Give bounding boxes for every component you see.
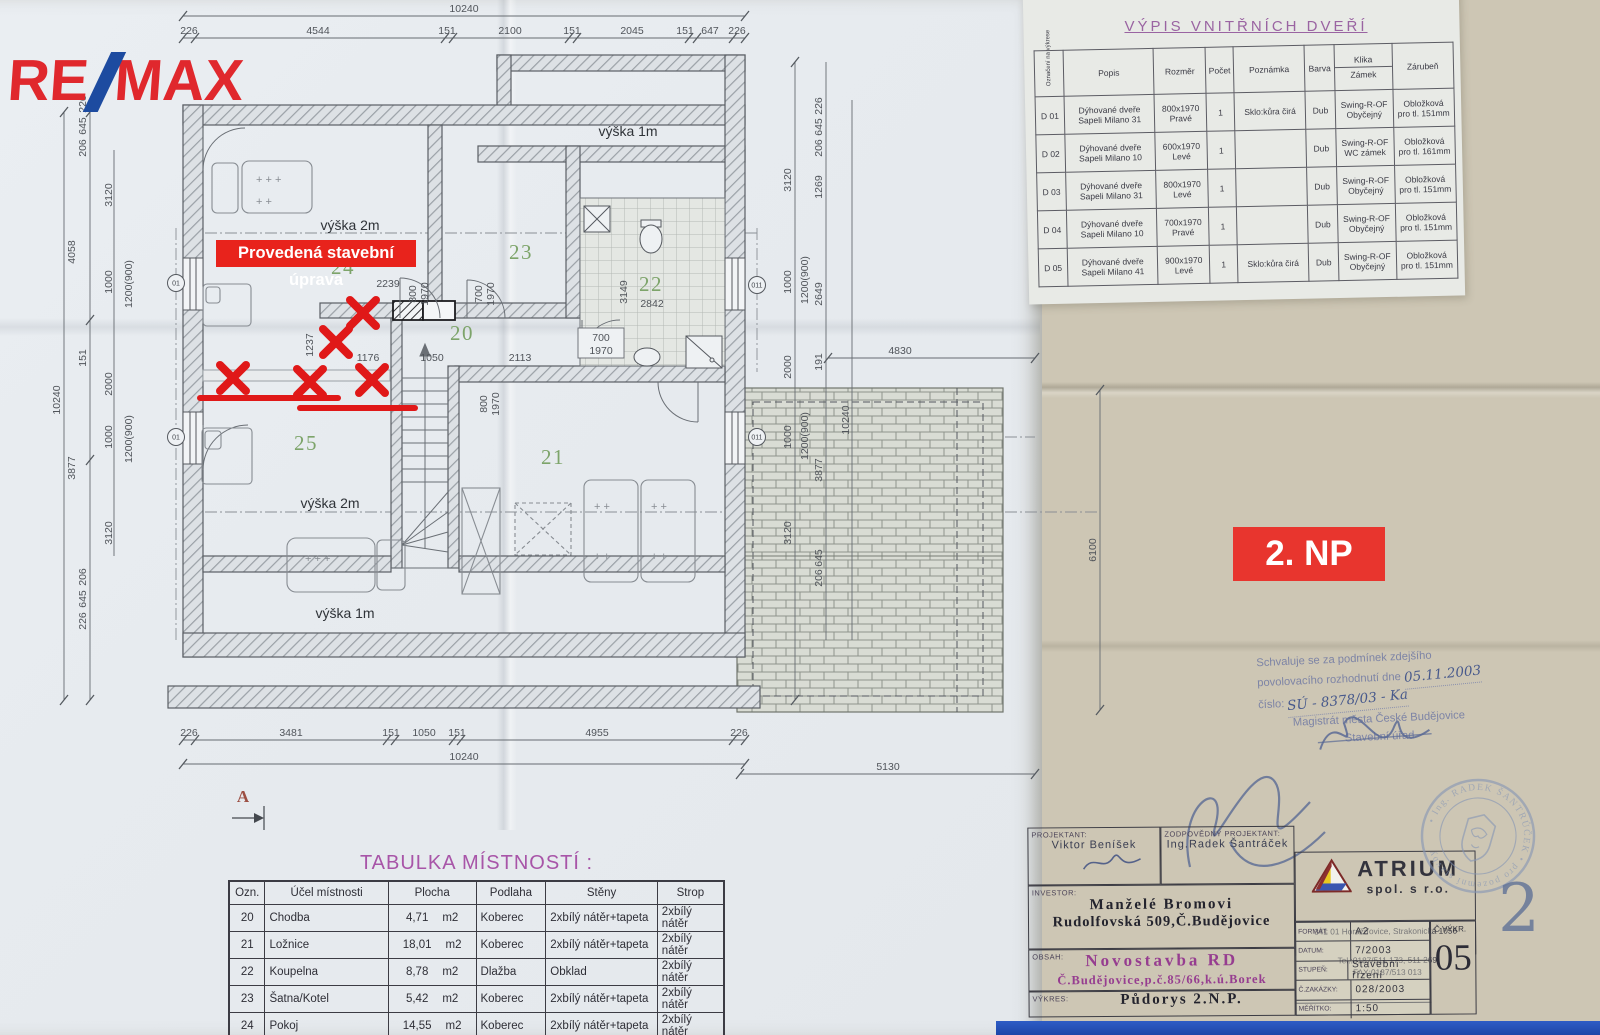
svg-text:3481: 3481 bbox=[279, 727, 303, 739]
svg-text:151: 151 bbox=[563, 25, 581, 37]
svg-text:3120: 3120 bbox=[782, 168, 794, 192]
svg-text:výška 1m: výška 1m bbox=[315, 605, 374, 621]
svg-text:4544: 4544 bbox=[306, 25, 330, 37]
svg-text:A: A bbox=[237, 787, 250, 806]
svg-text:700: 700 bbox=[473, 285, 485, 303]
svg-text:206: 206 bbox=[813, 139, 825, 157]
field-stupen: STUPEŇ:Stavební řízení bbox=[1296, 961, 1429, 981]
svg-text:011: 011 bbox=[751, 435, 762, 442]
svg-text:151: 151 bbox=[448, 727, 466, 739]
svg-text:226: 226 bbox=[180, 25, 198, 37]
svg-text:206: 206 bbox=[77, 139, 89, 157]
svg-text:226: 226 bbox=[728, 25, 746, 37]
svg-text:1176: 1176 bbox=[357, 352, 380, 364]
svg-text:645: 645 bbox=[813, 118, 825, 136]
svg-text:2000: 2000 bbox=[782, 355, 794, 379]
room-row: 22Koupelna 8,78m2 DlažbaObklad2xbílý nát… bbox=[229, 959, 724, 986]
svg-text:1970: 1970 bbox=[419, 282, 431, 306]
remax-logo-max: MAX bbox=[113, 52, 246, 110]
svg-text:výška 2m: výška 2m bbox=[320, 217, 379, 233]
svg-text:206: 206 bbox=[77, 568, 89, 586]
svg-text:011: 011 bbox=[751, 283, 762, 290]
room-row: 20Chodba 4,71m2 Koberec2xbílý nátěr+tape… bbox=[229, 905, 724, 932]
svg-text:+ + +: + + + bbox=[256, 174, 281, 186]
drawing-number-cell: Č.VÝKR. 05 bbox=[1430, 920, 1477, 1014]
svg-text:1970: 1970 bbox=[485, 282, 497, 306]
svg-text:1000: 1000 bbox=[103, 425, 115, 449]
svg-text:2045: 2045 bbox=[620, 25, 644, 37]
field-format: FORMÁT:A2 bbox=[1296, 922, 1429, 942]
svg-text:151: 151 bbox=[438, 25, 456, 37]
svg-text:10240: 10240 bbox=[51, 385, 63, 414]
svg-text:20: 20 bbox=[450, 321, 474, 345]
svg-text:2239: 2239 bbox=[376, 278, 400, 290]
svg-text:22: 22 bbox=[639, 272, 663, 296]
svg-text:výška 2m: výška 2m bbox=[300, 495, 359, 511]
svg-text:206: 206 bbox=[813, 569, 825, 587]
door-row: D 05 Dýhované dveřeSapeli Milano 41 900x… bbox=[1038, 240, 1458, 287]
room-col-strop: Strop bbox=[657, 881, 724, 905]
construction-change-label: Provedená stavební úprava bbox=[216, 240, 416, 267]
svg-text:3120: 3120 bbox=[782, 521, 794, 545]
svg-text:1200(900): 1200(900) bbox=[799, 256, 811, 304]
svg-text:4830: 4830 bbox=[888, 345, 912, 357]
svg-text:25: 25 bbox=[294, 431, 318, 455]
door-col-zaruben: Zárubeň bbox=[1392, 42, 1454, 89]
svg-text:2842: 2842 bbox=[640, 298, 664, 310]
room-col-steny: Stěny bbox=[546, 881, 658, 905]
dimension-labels-top: 10240 226 4544 151 2100 151 2045 151 647… bbox=[180, 3, 746, 37]
obsah-cell: OBSAH: Novostavba RD Č.Budějovice,p.č.85… bbox=[1028, 948, 1295, 992]
field-meritko: MĚŘÍTKO:1:50 bbox=[1297, 999, 1430, 1018]
svg-text:+ +: + + bbox=[594, 551, 610, 563]
remax-logo-re: RE bbox=[6, 52, 91, 110]
room-col-podlaha: Podlaha bbox=[476, 881, 546, 905]
svg-text:1000: 1000 bbox=[103, 270, 115, 294]
svg-text:10240: 10240 bbox=[840, 405, 852, 434]
door-col-rozmer: Rozměr bbox=[1153, 47, 1206, 94]
svg-text:2113: 2113 bbox=[509, 352, 532, 364]
svg-text:3877: 3877 bbox=[813, 458, 825, 482]
roof-area bbox=[737, 388, 1003, 712]
svg-text:700: 700 bbox=[592, 332, 610, 344]
door-col-poznamka: Poznámka bbox=[1233, 45, 1305, 92]
room-col-plocha: Plocha bbox=[388, 881, 476, 905]
room-row: 21Ložnice 18,01m2 Koberec2xbílý nátěr+ta… bbox=[229, 932, 724, 959]
svg-text:6100: 6100 bbox=[1087, 538, 1099, 562]
dimensions-bottom bbox=[179, 735, 1039, 779]
room-table-title: TABULKA MÍSTNOSTÍ : bbox=[228, 852, 725, 875]
svg-text:1970: 1970 bbox=[490, 392, 502, 416]
svg-text:01: 01 bbox=[172, 435, 180, 442]
svg-text:+ +: + + bbox=[651, 501, 667, 513]
svg-text:645: 645 bbox=[77, 590, 89, 608]
atrium-logo-icon bbox=[1311, 858, 1351, 894]
scanned-floorplan-photo: 01 01 011 011 bbox=[0, 0, 1600, 1035]
svg-text:4955: 4955 bbox=[585, 727, 609, 739]
svg-text:226: 226 bbox=[180, 727, 198, 739]
svg-text:151: 151 bbox=[382, 727, 400, 739]
svg-text:1000: 1000 bbox=[782, 270, 794, 294]
door-col-pocet: Počet bbox=[1205, 47, 1234, 94]
svg-text:1000: 1000 bbox=[782, 425, 794, 449]
drawing-fields: FORMÁT:A2 DATUM:7/2003 STUPEŇ:Stavební ř… bbox=[1295, 921, 1431, 1016]
room-col-ozn: Ozn. bbox=[229, 881, 265, 905]
remax-logo: RE MAX bbox=[6, 52, 246, 110]
vykres-cell: VÝKRES: Půdorys 2.N.P. bbox=[1028, 990, 1295, 1018]
svg-text:1269: 1269 bbox=[813, 175, 825, 199]
svg-text:1200(900): 1200(900) bbox=[123, 260, 135, 308]
svg-text:21: 21 bbox=[541, 445, 565, 469]
room-col-ucel: Účel místnosti bbox=[265, 881, 388, 905]
svg-text:191: 191 bbox=[813, 353, 825, 371]
svg-text:+ +: + + bbox=[594, 501, 610, 513]
svg-text:1200(900): 1200(900) bbox=[799, 412, 811, 460]
svg-text:4058: 4058 bbox=[66, 240, 78, 264]
svg-text:645: 645 bbox=[813, 549, 825, 567]
room-table: Ozn. Účel místnosti Plocha Podlaha Stěny… bbox=[228, 880, 725, 1035]
svg-text:+ + +: + + + bbox=[305, 553, 330, 565]
door-col-barva: Barva bbox=[1304, 45, 1335, 92]
svg-text:10240: 10240 bbox=[449, 751, 478, 763]
room-row: 23Šatna/Kotel 5,42m2 Koberec2xbílý nátěr… bbox=[229, 986, 724, 1013]
svg-text:647: 647 bbox=[701, 25, 719, 37]
svg-text:1970: 1970 bbox=[589, 345, 613, 357]
door-table-title: VÝPIS VNITŘNÍCH DVEŘÍ bbox=[1036, 18, 1456, 35]
photo-edge bbox=[996, 1021, 1600, 1035]
svg-text:645: 645 bbox=[77, 117, 89, 135]
signature-small bbox=[1079, 851, 1149, 875]
svg-text:151: 151 bbox=[676, 25, 694, 37]
room-row: 24Pokoj 14,55m2 Koberec2xbílý nátěr+tape… bbox=[229, 1013, 724, 1035]
svg-text:800: 800 bbox=[407, 285, 419, 303]
svg-text:+ +: + + bbox=[256, 196, 272, 208]
section-marker: A bbox=[232, 787, 264, 830]
svg-text:2000: 2000 bbox=[103, 372, 115, 396]
svg-text:151: 151 bbox=[77, 349, 89, 367]
door-schedule-table: Označení na výkrese Popis Rozměr Počet P… bbox=[1034, 42, 1459, 288]
svg-text:3120: 3120 bbox=[103, 183, 115, 207]
svg-text:+ +: + + bbox=[651, 551, 667, 563]
stamp-shield-icon bbox=[1457, 811, 1497, 865]
svg-text:226: 226 bbox=[730, 727, 748, 739]
svg-text:226: 226 bbox=[77, 612, 89, 630]
svg-text:2649: 2649 bbox=[813, 282, 825, 306]
svg-text:23: 23 bbox=[509, 240, 533, 264]
svg-text:01: 01 bbox=[172, 281, 180, 288]
door-col-popis: Popis bbox=[1063, 48, 1154, 96]
svg-text:1050: 1050 bbox=[412, 727, 436, 739]
dimensions-top bbox=[179, 11, 749, 43]
svg-text:1237: 1237 bbox=[304, 333, 316, 357]
svg-text:226: 226 bbox=[813, 97, 825, 115]
svg-text:1050: 1050 bbox=[420, 352, 444, 364]
svg-text:3877: 3877 bbox=[66, 456, 78, 480]
projektant-cell: PROJEKTANT: Viktor Beníšek bbox=[1027, 827, 1160, 886]
svg-text:10240: 10240 bbox=[449, 3, 478, 15]
door-col-klika-zamek: Klika Zámek bbox=[1334, 43, 1392, 90]
svg-text:3149: 3149 bbox=[618, 280, 630, 304]
investor-cell: INVESTOR: Manželé Bromovi Rudolfovská 50… bbox=[1028, 884, 1295, 950]
floor-plan-drawing: 01 01 011 011 bbox=[0, 0, 1160, 830]
svg-text:1200(900): 1200(900) bbox=[123, 415, 135, 463]
page-number: 2 bbox=[1498, 870, 1540, 947]
floor-badge: 2. NP bbox=[1233, 527, 1385, 581]
zodpovedny-cell: ZODPOVĚDNÝ PROJEKTANT: Ing.Radek Šantráč… bbox=[1160, 826, 1294, 885]
dimension-labels-bottom: 226 3481 151 1050 151 4955 226 10240 513… bbox=[180, 727, 900, 773]
field-zakazka: Č.ZAKÁZKY:028/2003 bbox=[1296, 980, 1429, 1000]
svg-text:2100: 2100 bbox=[498, 25, 522, 37]
svg-text:800: 800 bbox=[478, 395, 490, 413]
approval-stamp: Schvaluje se za podmínek zdejšího povolo… bbox=[1256, 645, 1500, 751]
door-col-ozn: Označení na výkrese bbox=[1034, 50, 1064, 97]
svg-text:výška 1m: výška 1m bbox=[598, 123, 657, 139]
svg-text:3120: 3120 bbox=[103, 521, 115, 545]
svg-text:5130: 5130 bbox=[876, 761, 900, 773]
